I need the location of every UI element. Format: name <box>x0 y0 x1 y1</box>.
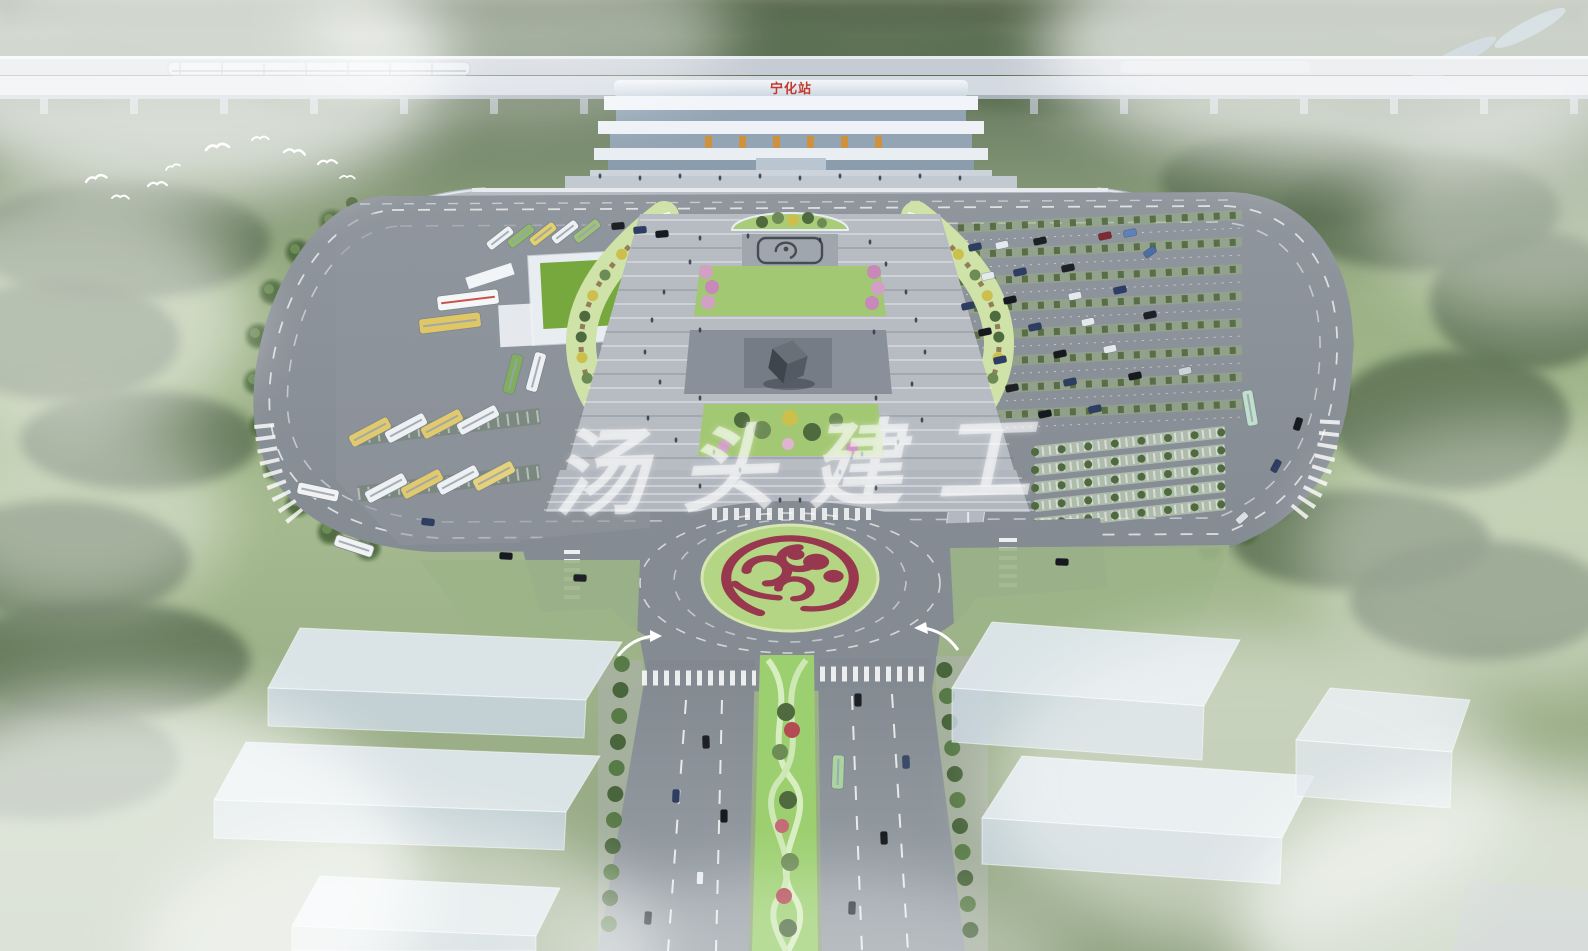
station-sign: 宁化站 <box>770 81 812 96</box>
viaduct-pier <box>1300 98 1308 114</box>
tree-icon <box>614 656 630 672</box>
pedestrian <box>839 469 842 474</box>
pedestrian <box>873 329 876 334</box>
pedestrian <box>924 349 927 354</box>
tree-icon <box>1217 482 1225 490</box>
rendering-canvas: 宁化站 <box>0 0 1588 951</box>
tree-icon <box>576 331 587 342</box>
pedestrian <box>675 437 678 442</box>
pedestrian <box>699 395 702 400</box>
tree-icon <box>1164 488 1172 496</box>
tree-icon <box>250 328 260 338</box>
tree-icon <box>609 760 625 776</box>
tree-icon <box>993 331 1004 342</box>
pedestrian <box>879 175 882 180</box>
car <box>499 552 512 560</box>
pedestrian <box>739 467 742 472</box>
tree-icon <box>962 922 978 938</box>
tree-icon <box>1217 428 1225 436</box>
viaduct-pier <box>580 98 588 114</box>
ghost-building <box>214 742 600 850</box>
pedestrian <box>644 349 647 354</box>
tree-icon <box>1111 458 1119 466</box>
tree-icon <box>1217 464 1225 472</box>
pedestrian <box>679 173 682 178</box>
pedestrian <box>663 289 666 294</box>
viaduct-pier <box>40 98 48 114</box>
tree-icon <box>1164 434 1172 442</box>
tree-icon <box>960 896 976 912</box>
tree-icon <box>1084 478 1092 486</box>
viaduct-pier <box>1390 98 1398 114</box>
tree-icon <box>936 662 952 678</box>
tree-icon <box>1137 491 1145 499</box>
pedestrian <box>819 237 822 242</box>
tree-icon <box>1164 470 1172 478</box>
bus-roof-line <box>838 759 839 785</box>
boulevard <box>598 622 988 951</box>
tree-icon <box>1111 494 1119 502</box>
tree-icon <box>1217 500 1225 508</box>
ghost-building <box>1452 880 1588 951</box>
pedestrian <box>839 173 842 178</box>
pedestrian <box>599 173 602 178</box>
pedestrian <box>897 439 900 444</box>
tree-icon <box>599 269 610 280</box>
pedestrian <box>915 317 918 322</box>
tree-icon <box>1137 437 1145 445</box>
bus <box>831 755 844 789</box>
tree-icon <box>957 870 973 886</box>
egret-icon <box>252 137 269 140</box>
car <box>1055 558 1068 565</box>
station-building: 宁化站 <box>590 80 992 178</box>
tree-icon <box>587 290 598 301</box>
pedestrian <box>921 417 924 422</box>
tree-icon <box>1137 455 1145 463</box>
tree-icon <box>603 864 619 880</box>
forest-cluster <box>1330 350 1570 490</box>
tree-icon <box>607 786 623 802</box>
egret-icon <box>318 160 337 164</box>
ghost-building <box>1296 688 1470 808</box>
car <box>644 911 652 924</box>
egret-icon <box>284 148 305 156</box>
tree-icon <box>616 249 627 260</box>
viaduct-pier <box>130 98 138 114</box>
tree-icon <box>953 249 964 260</box>
pedestrian <box>919 173 922 178</box>
blossom-lawn <box>694 265 886 316</box>
viaduct-pier <box>1570 98 1578 114</box>
pedestrian <box>699 483 702 488</box>
egret-icon <box>206 143 229 150</box>
train <box>168 62 470 75</box>
tree-icon <box>1058 463 1066 471</box>
ghost-building <box>982 756 1314 884</box>
tree-icon <box>1084 496 1092 504</box>
tree-icon <box>1058 445 1066 453</box>
train-2 <box>1120 61 1310 73</box>
pedestrian <box>885 261 888 266</box>
pedestrian <box>699 235 702 240</box>
pedestrian <box>779 497 782 502</box>
car <box>672 789 679 802</box>
forest-cluster <box>20 390 260 490</box>
tree-icon <box>1191 503 1199 511</box>
tree-icon <box>602 890 618 906</box>
tree-icon <box>1111 440 1119 448</box>
pedestrian <box>747 233 750 238</box>
pedestrian <box>659 379 662 384</box>
tree-icon <box>949 792 965 808</box>
viaduct-pier <box>220 98 228 114</box>
pedestrian <box>713 449 716 454</box>
tree-icon <box>605 838 621 854</box>
tree-icon <box>610 734 626 750</box>
tree-icon <box>606 812 622 828</box>
tree-icon <box>1164 452 1172 460</box>
viaduct-pier <box>1480 98 1488 114</box>
viaduct-pier <box>310 98 318 114</box>
pedestrian <box>905 289 908 294</box>
tree-icon <box>1191 485 1199 493</box>
viaduct-pier <box>1030 98 1038 114</box>
pedestrian <box>639 175 642 180</box>
pedestrian <box>647 415 650 420</box>
tree-icon <box>1031 484 1039 492</box>
pedestrian <box>875 395 878 400</box>
viaduct-pier <box>1210 98 1218 114</box>
tree-icon <box>1084 460 1092 468</box>
pedestrian <box>875 485 878 490</box>
tree-icon <box>1164 506 1172 514</box>
tree-icon <box>1217 446 1225 454</box>
tree-icon <box>579 311 590 322</box>
tree-icon <box>1031 448 1039 456</box>
pedestrian <box>759 173 762 178</box>
egret-icon <box>165 163 180 170</box>
emblem-paving <box>742 234 838 266</box>
tree-icon <box>970 269 981 280</box>
car <box>880 831 887 844</box>
viaduct-pier <box>1120 98 1128 114</box>
car <box>721 810 728 823</box>
tree-icon <box>1191 449 1199 457</box>
tree-icon <box>947 766 963 782</box>
forest-cluster <box>0 700 180 820</box>
tree-icon <box>1111 512 1119 520</box>
tree-icon <box>1137 473 1145 481</box>
tree-icon <box>582 373 593 384</box>
car <box>633 226 647 234</box>
tree-icon <box>1058 481 1066 489</box>
tree-icon <box>611 708 627 724</box>
car <box>702 735 709 748</box>
ghost-building <box>952 622 1240 760</box>
pedestrian <box>959 175 962 180</box>
car <box>655 230 669 238</box>
pedestrian <box>651 317 654 322</box>
tree-icon <box>1084 442 1092 450</box>
tree-icon <box>290 244 300 254</box>
pedestrian <box>869 239 872 244</box>
tree-icon <box>576 352 587 363</box>
car <box>696 871 703 884</box>
tree-icon <box>264 284 274 294</box>
sculpture-court <box>684 330 892 394</box>
pedestrian <box>799 175 802 180</box>
tree-icon <box>990 311 1001 322</box>
tree-icon <box>1031 502 1039 510</box>
viaduct-pier <box>400 98 408 114</box>
viaduct-pier <box>490 98 498 114</box>
pedestrian <box>689 259 692 264</box>
tree-icon <box>1137 509 1145 517</box>
scene-svg: 宁化站 <box>0 0 1588 951</box>
car <box>848 901 855 914</box>
tree-icon <box>1191 467 1199 475</box>
south-lawn <box>698 404 884 456</box>
tree-icon <box>613 682 629 698</box>
car <box>855 694 862 707</box>
pedestrian <box>719 175 722 180</box>
pedestrian <box>911 381 914 386</box>
tree-icon <box>955 844 971 860</box>
tree-icon <box>1111 476 1119 484</box>
car <box>611 222 625 230</box>
ghost-building <box>292 876 560 951</box>
tree-icon <box>952 818 968 834</box>
tree-icon <box>1191 431 1199 439</box>
car <box>573 574 586 581</box>
pedestrian <box>861 451 864 456</box>
tree-icon <box>987 373 998 384</box>
pedestrian <box>799 497 802 502</box>
egret-icon <box>340 175 355 179</box>
tree-icon <box>1031 466 1039 474</box>
pedestrian <box>699 327 702 332</box>
car <box>421 518 435 526</box>
ghost-building <box>268 628 622 738</box>
tree-icon <box>982 290 993 301</box>
car <box>902 755 909 768</box>
tree-icon <box>601 916 617 932</box>
tree-icon <box>1058 499 1066 507</box>
